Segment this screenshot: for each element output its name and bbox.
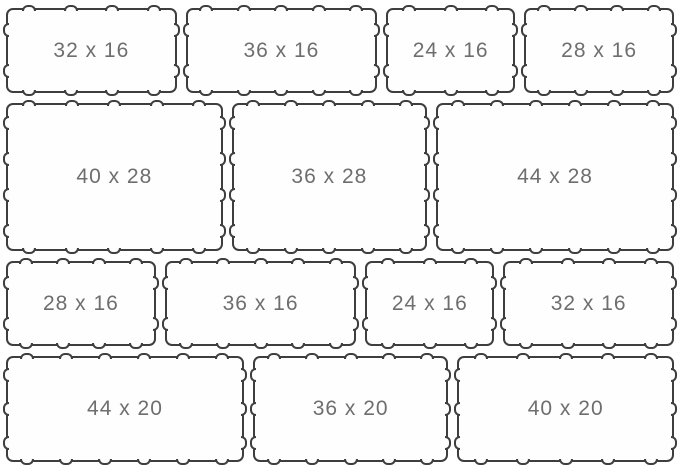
spacer-lug-icon <box>646 248 660 254</box>
spacer-lug-icon <box>241 368 247 382</box>
spacer-lug-icon <box>451 248 465 254</box>
spacer-lug-icon <box>646 100 660 106</box>
spacer-lug-icon <box>220 116 226 130</box>
spacer-lug-icon <box>500 276 506 290</box>
tile-size-label: 28 x 16 <box>43 292 119 316</box>
spacer-lug-icon <box>671 224 677 238</box>
spacer-lug-icon <box>22 5 36 11</box>
spacer-lug-icon <box>291 343 305 349</box>
spacer-lug-icon <box>250 402 256 416</box>
spacer-lug-icon <box>220 188 226 202</box>
paver-tile: 24 x 16 <box>365 261 494 346</box>
spacer-lug-icon <box>183 23 189 37</box>
spacer-lug-icon <box>246 100 260 106</box>
spacer-lug-icon <box>491 276 497 290</box>
spacer-lug-icon <box>107 100 121 106</box>
spacer-lug-icon <box>56 258 70 264</box>
spacer-lug-icon <box>250 368 256 382</box>
spacer-lug-icon <box>602 258 616 264</box>
spacer-lug-icon <box>561 343 575 349</box>
spacer-lug-icon <box>529 100 543 106</box>
spacer-lug-icon <box>512 23 518 37</box>
spacer-lug-icon <box>267 459 281 465</box>
paver-tile: 28 x 16 <box>6 261 156 346</box>
tile-size-label: 24 x 16 <box>392 292 468 316</box>
paver-tile: 28 x 16 <box>524 8 674 93</box>
spacer-lug-icon <box>215 353 229 359</box>
paver-tile: 44 x 28 <box>436 103 674 251</box>
paver-tile: 36 x 28 <box>232 103 427 251</box>
spacer-lug-icon <box>229 224 235 238</box>
spacer-lug-icon <box>362 317 368 331</box>
spacer-lug-icon <box>344 459 358 465</box>
spacer-lug-icon <box>671 368 677 382</box>
spacer-lug-icon <box>420 353 434 359</box>
spacer-lug-icon <box>445 368 451 382</box>
spacer-lug-icon <box>464 343 478 349</box>
tile-size-label: 40 x 20 <box>528 397 604 421</box>
spacer-lug-icon <box>671 116 677 130</box>
tile-size-label: 36 x 28 <box>291 165 367 189</box>
spacer-lug-icon <box>485 5 499 11</box>
spacer-lug-icon <box>474 353 488 359</box>
spacer-lug-icon <box>521 64 527 78</box>
spacer-lug-icon <box>20 353 34 359</box>
spacer-lug-icon <box>516 353 530 359</box>
paver-tile: 40 x 28 <box>6 103 223 251</box>
spacer-lug-icon <box>183 64 189 78</box>
spacer-lug-icon <box>329 258 343 264</box>
paver-row: 44 x 2036 x 2040 x 20 <box>6 356 674 462</box>
spacer-lug-icon <box>19 343 33 349</box>
spacer-lug-icon <box>671 317 677 331</box>
spacer-lug-icon <box>424 116 430 130</box>
spacer-lug-icon <box>129 343 143 349</box>
spacer-lug-icon <box>574 5 588 11</box>
spacer-lug-icon <box>254 258 268 264</box>
spacer-lug-icon <box>402 90 416 96</box>
spacer-lug-icon <box>192 248 206 254</box>
spacer-lug-icon <box>322 100 336 106</box>
spacer-lug-icon <box>64 5 78 11</box>
spacer-lug-icon <box>529 248 543 254</box>
spacer-lug-icon <box>519 343 533 349</box>
spacer-lug-icon <box>250 436 256 450</box>
spacer-lug-icon <box>610 90 624 96</box>
spacer-lug-icon <box>568 248 582 254</box>
spacer-lug-icon <box>153 276 159 290</box>
spacer-lug-icon <box>216 343 230 349</box>
spacer-lug-icon <box>610 5 624 11</box>
spacer-lug-icon <box>601 353 615 359</box>
spacer-lug-icon <box>374 23 380 37</box>
spacer-lug-icon <box>241 402 247 416</box>
tile-size-label: 36 x 16 <box>243 39 319 63</box>
spacer-lug-icon <box>521 23 527 37</box>
spacer-lug-icon <box>3 402 9 416</box>
spacer-lug-icon <box>444 5 458 11</box>
spacer-lug-icon <box>423 258 437 264</box>
spacer-lug-icon <box>162 317 168 331</box>
paver-row: 40 x 2836 x 2844 x 28 <box>6 103 674 251</box>
spacer-lug-icon <box>147 5 161 11</box>
spacer-lug-icon <box>291 258 305 264</box>
spacer-lug-icon <box>98 459 112 465</box>
paver-tile: 36 x 16 <box>186 8 378 93</box>
spacer-lug-icon <box>199 5 213 11</box>
spacer-lug-icon <box>601 459 615 465</box>
spacer-lug-icon <box>229 152 235 166</box>
spacer-lug-icon <box>644 343 658 349</box>
spacer-lug-icon <box>22 100 36 106</box>
spacer-lug-icon <box>267 353 281 359</box>
spacer-lug-icon <box>3 116 9 130</box>
spacer-lug-icon <box>559 459 573 465</box>
spacer-lug-icon <box>399 100 413 106</box>
spacer-lug-icon <box>3 23 9 37</box>
spacer-lug-icon <box>92 258 106 264</box>
paver-tile: 32 x 16 <box>6 8 177 93</box>
tile-size-label: 40 x 28 <box>76 165 152 189</box>
spacer-lug-icon <box>220 152 226 166</box>
spacer-lug-icon <box>382 353 396 359</box>
spacer-lug-icon <box>433 152 439 166</box>
spacer-lug-icon <box>274 5 288 11</box>
spacer-lug-icon <box>3 188 9 202</box>
spacer-lug-icon <box>445 402 451 416</box>
spacer-lug-icon <box>56 343 70 349</box>
spacer-lug-icon <box>192 100 206 106</box>
spacer-lug-icon <box>433 224 439 238</box>
spacer-lug-icon <box>671 152 677 166</box>
tile-size-label: 28 x 16 <box>561 39 637 63</box>
spacer-lug-icon <box>445 436 451 450</box>
spacer-lug-icon <box>107 248 121 254</box>
paver-tile: 36 x 20 <box>253 356 448 462</box>
spacer-lug-icon <box>174 64 180 78</box>
spacer-lug-icon <box>241 436 247 450</box>
spacer-lug-icon <box>454 368 460 382</box>
spacer-lug-icon <box>274 90 288 96</box>
spacer-lug-icon <box>174 23 180 37</box>
spacer-lug-icon <box>433 116 439 130</box>
spacer-lug-icon <box>512 64 518 78</box>
spacer-lug-icon <box>424 224 430 238</box>
spacer-lug-icon <box>671 436 677 450</box>
spacer-lug-icon <box>607 100 621 106</box>
paver-tile: 32 x 16 <box>503 261 674 346</box>
spacer-lug-icon <box>559 353 573 359</box>
spacer-lug-icon <box>65 100 79 106</box>
spacer-lug-icon <box>464 258 478 264</box>
spacer-lug-icon <box>246 248 260 254</box>
spacer-lug-icon <box>423 343 437 349</box>
spacer-lug-icon <box>647 5 661 11</box>
spacer-lug-icon <box>229 116 235 130</box>
spacer-lug-icon <box>312 90 326 96</box>
spacer-lug-icon <box>179 258 193 264</box>
spacer-lug-icon <box>353 276 359 290</box>
spacer-lug-icon <box>179 343 193 349</box>
paver-tile: 24 x 16 <box>386 8 515 93</box>
spacer-lug-icon <box>176 459 190 465</box>
spacer-lug-icon <box>424 152 430 166</box>
spacer-lug-icon <box>98 353 112 359</box>
spacer-lug-icon <box>454 436 460 450</box>
spacer-lug-icon <box>381 343 395 349</box>
spacer-lug-icon <box>3 317 9 331</box>
spacer-lug-icon <box>237 90 251 96</box>
spacer-lug-icon <box>361 100 375 106</box>
spacer-lug-icon <box>361 248 375 254</box>
spacer-lug-icon <box>420 459 434 465</box>
spacer-lug-icon <box>147 90 161 96</box>
tile-size-label: 32 x 16 <box>53 39 129 63</box>
spacer-lug-icon <box>150 248 164 254</box>
spacer-lug-icon <box>199 90 213 96</box>
spacer-lug-icon <box>561 258 575 264</box>
spacer-lug-icon <box>105 90 119 96</box>
spacer-lug-icon <box>451 100 465 106</box>
spacer-lug-icon <box>568 100 582 106</box>
spacer-lug-icon <box>3 436 9 450</box>
spacer-lug-icon <box>433 188 439 202</box>
spacer-lug-icon <box>237 5 251 11</box>
spacer-lug-icon <box>399 248 413 254</box>
spacer-lug-icon <box>349 5 363 11</box>
spacer-lug-icon <box>137 353 151 359</box>
spacer-lug-icon <box>305 353 319 359</box>
spacer-lug-icon <box>65 248 79 254</box>
spacer-lug-icon <box>607 248 621 254</box>
spacer-lug-icon <box>162 276 168 290</box>
spacer-lug-icon <box>220 224 226 238</box>
spacer-lug-icon <box>20 459 34 465</box>
paver-tile: 40 x 20 <box>457 356 674 462</box>
spacer-lug-icon <box>349 90 363 96</box>
spacer-lug-icon <box>644 353 658 359</box>
spacer-lug-icon <box>644 459 658 465</box>
spacer-lug-icon <box>22 248 36 254</box>
spacer-lug-icon <box>92 343 106 349</box>
spacer-lug-icon <box>500 317 506 331</box>
spacer-lug-icon <box>516 459 530 465</box>
paver-row: 32 x 1636 x 1624 x 1628 x 16 <box>6 8 674 93</box>
tile-size-label: 32 x 16 <box>551 292 627 316</box>
spacer-lug-icon <box>491 317 497 331</box>
spacer-lug-icon <box>490 248 504 254</box>
spacer-lug-icon <box>3 276 9 290</box>
spacer-lug-icon <box>424 188 430 202</box>
spacer-lug-icon <box>353 317 359 331</box>
spacer-lug-icon <box>216 258 230 264</box>
spacer-lug-icon <box>374 64 380 78</box>
tile-size-label: 44 x 28 <box>517 165 593 189</box>
spacer-lug-icon <box>137 459 151 465</box>
spacer-lug-icon <box>344 353 358 359</box>
spacer-lug-icon <box>3 152 9 166</box>
spacer-lug-icon <box>284 100 298 106</box>
spacer-lug-icon <box>444 90 458 96</box>
spacer-lug-icon <box>383 23 389 37</box>
spacer-lug-icon <box>284 248 298 254</box>
spacer-lug-icon <box>671 402 677 416</box>
spacer-lug-icon <box>3 64 9 78</box>
spacer-lug-icon <box>474 459 488 465</box>
spacer-lug-icon <box>312 5 326 11</box>
spacer-lug-icon <box>176 353 190 359</box>
paver-row: 28 x 1636 x 1624 x 1632 x 16 <box>6 261 674 346</box>
spacer-lug-icon <box>105 5 119 11</box>
spacer-lug-icon <box>59 353 73 359</box>
spacer-lug-icon <box>671 276 677 290</box>
spacer-lug-icon <box>644 258 658 264</box>
spacer-lug-icon <box>59 459 73 465</box>
spacer-lug-icon <box>3 224 9 238</box>
spacer-lug-icon <box>150 100 164 106</box>
spacer-lug-icon <box>305 459 319 465</box>
spacer-lug-icon <box>602 343 616 349</box>
tile-size-label: 44 x 20 <box>87 397 163 421</box>
tile-size-label: 36 x 20 <box>313 397 389 421</box>
paver-tile: 36 x 16 <box>165 261 357 346</box>
spacer-lug-icon <box>671 64 677 78</box>
paver-tile: 44 x 20 <box>6 356 244 462</box>
spacer-lug-icon <box>229 188 235 202</box>
spacer-lug-icon <box>671 23 677 37</box>
spacer-lug-icon <box>254 343 268 349</box>
spacer-lug-icon <box>383 64 389 78</box>
spacer-lug-icon <box>381 258 395 264</box>
spacer-lug-icon <box>329 343 343 349</box>
spacer-lug-icon <box>362 276 368 290</box>
spacer-lug-icon <box>22 90 36 96</box>
spacer-lug-icon <box>3 368 9 382</box>
spacer-lug-icon <box>454 402 460 416</box>
spacer-lug-icon <box>647 90 661 96</box>
spacer-lug-icon <box>19 258 33 264</box>
tile-size-label: 36 x 16 <box>223 292 299 316</box>
spacer-lug-icon <box>382 459 396 465</box>
spacer-lug-icon <box>485 90 499 96</box>
paver-pattern-diagram: 32 x 1636 x 1624 x 1628 x 1640 x 2836 x … <box>0 0 680 474</box>
spacer-lug-icon <box>402 5 416 11</box>
spacer-lug-icon <box>519 258 533 264</box>
spacer-lug-icon <box>671 188 677 202</box>
spacer-lug-icon <box>490 100 504 106</box>
spacer-lug-icon <box>322 248 336 254</box>
spacer-lug-icon <box>215 459 229 465</box>
spacer-lug-icon <box>64 90 78 96</box>
spacer-lug-icon <box>574 90 588 96</box>
spacer-lug-icon <box>129 258 143 264</box>
spacer-lug-icon <box>153 317 159 331</box>
tile-size-label: 24 x 16 <box>413 39 489 63</box>
spacer-lug-icon <box>537 5 551 11</box>
spacer-lug-icon <box>537 90 551 96</box>
